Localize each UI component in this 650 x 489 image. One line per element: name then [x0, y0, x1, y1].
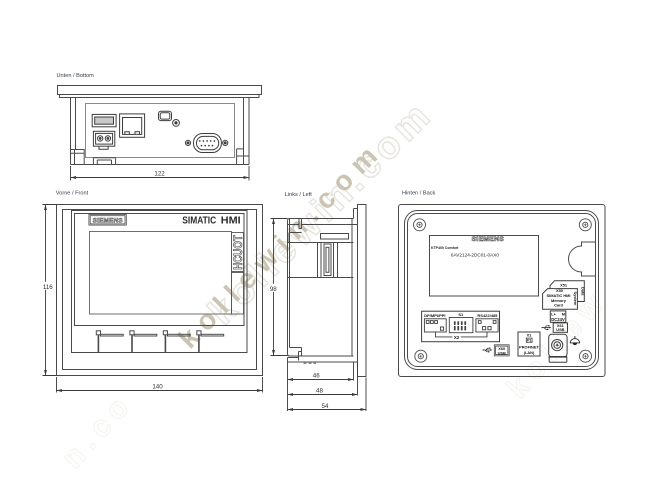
svg-text:6AV2124-2DC01-0AX0: 6AV2124-2DC01-0AX0 — [451, 253, 500, 258]
svg-text:140: 140 — [152, 384, 163, 391]
svg-text:Vorne / Front: Vorne / Front — [56, 191, 89, 197]
svg-text:USB: USB — [498, 350, 506, 355]
svg-text:PROFINET: PROFINET — [519, 344, 539, 349]
svg-text:X1: X1 — [527, 333, 533, 338]
svg-text:122: 122 — [154, 171, 165, 178]
svg-text:48: 48 — [316, 388, 323, 395]
svg-text:HMI: HMI — [221, 215, 241, 227]
svg-text:X51: X51 — [560, 282, 568, 287]
svg-text:54: 54 — [322, 403, 329, 410]
svg-text:46: 46 — [313, 372, 320, 379]
svg-text:Data: Data — [580, 287, 585, 296]
svg-text:P1: P1 — [527, 339, 532, 343]
svg-text:98: 98 — [270, 286, 277, 293]
svg-text:KTP400 Comfort: KTP400 Comfort — [431, 246, 459, 250]
svg-text:Card: Card — [554, 303, 563, 308]
svg-text:X2: X2 — [454, 335, 460, 340]
svg-text:HCUOT: HCUOT — [232, 235, 245, 270]
svg-text:DP/MPI/PPI: DP/MPI/PPI — [424, 313, 445, 318]
svg-text:Hinten / Back: Hinten / Back — [402, 191, 435, 197]
svg-text:S1: S1 — [458, 312, 464, 317]
svg-text:SIEMENS: SIEMENS — [471, 236, 504, 243]
svg-text:Unten / Bottom: Unten / Bottom — [57, 73, 95, 79]
svg-text:DC24V: DC24V — [551, 317, 565, 322]
svg-text:RS422/485: RS422/485 — [477, 313, 498, 318]
svg-text:116: 116 — [43, 284, 53, 291]
svg-text:SIMATIC: SIMATIC — [182, 215, 216, 227]
svg-text:SIEMENS: SIEMENS — [93, 218, 124, 225]
svg-text:Links / Left: Links / Left — [285, 192, 312, 198]
svg-text:System: System — [573, 292, 578, 306]
svg-text:USB: USB — [556, 327, 564, 332]
svg-text:M: M — [562, 311, 565, 316]
svg-text:L+: L+ — [551, 311, 556, 316]
svg-text:(LAN): (LAN) — [524, 350, 535, 355]
